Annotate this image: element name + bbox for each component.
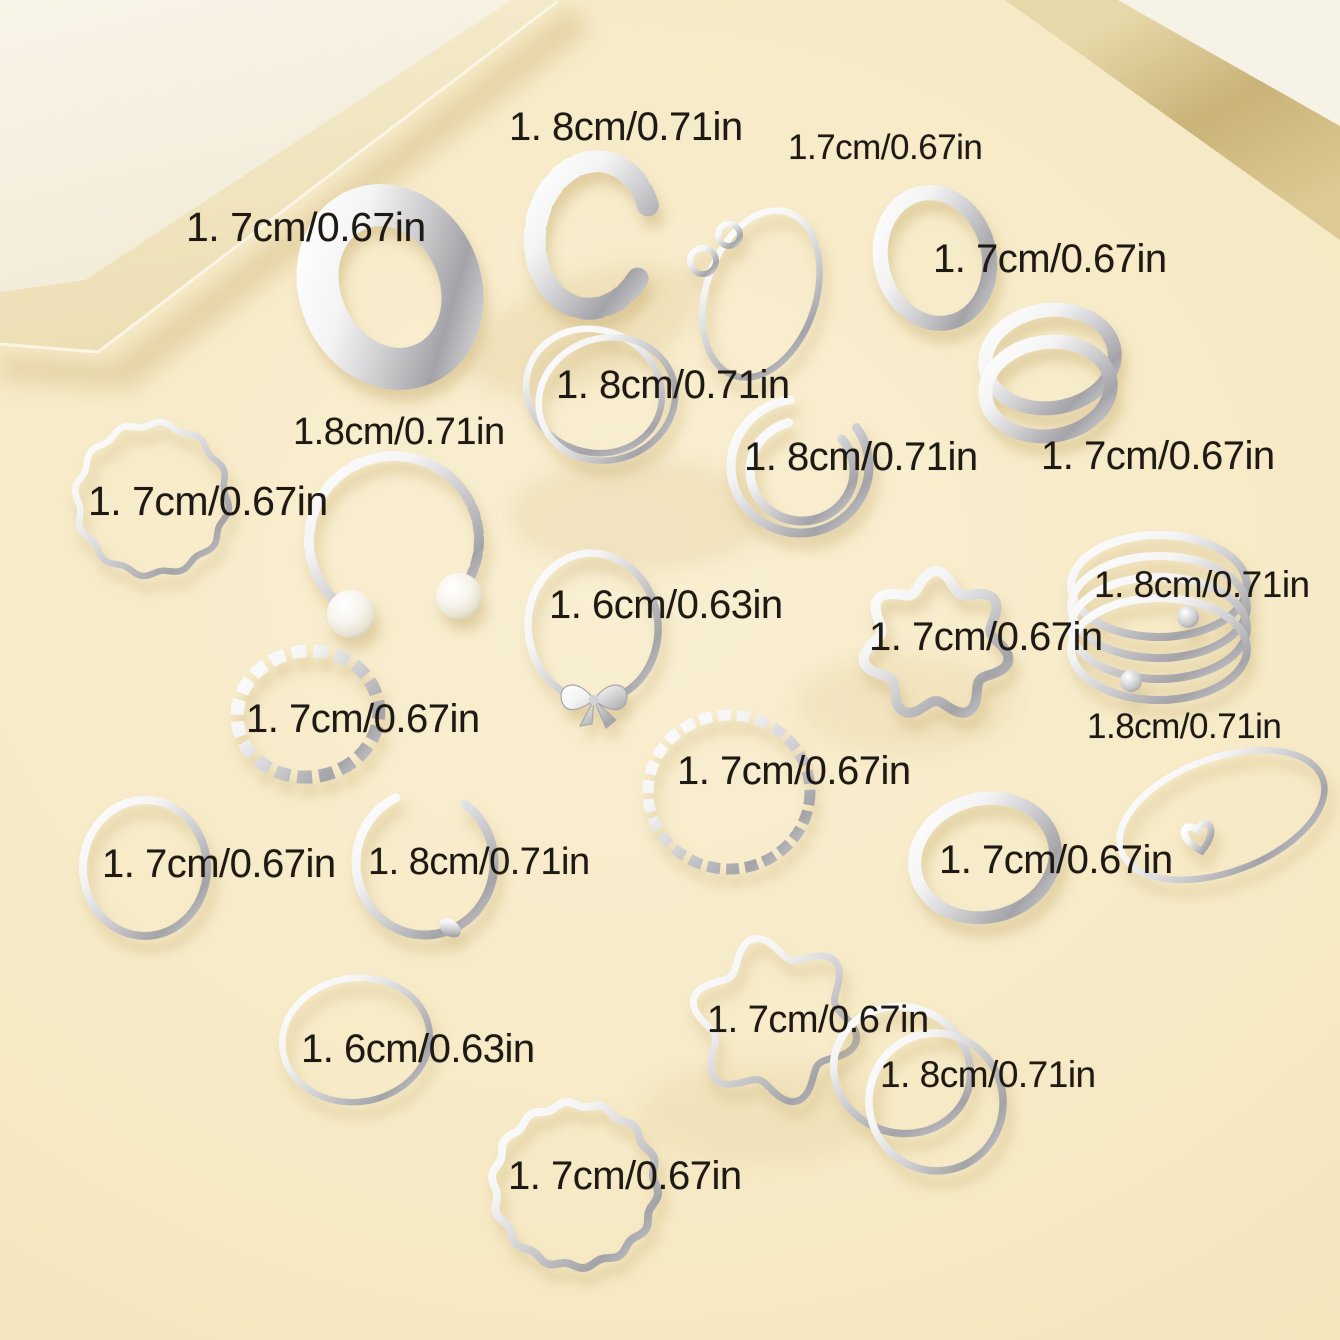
size-label: 1. 8cm/0.71in [1094, 566, 1310, 605]
size-label: 1. 7cm/0.67in [88, 480, 328, 523]
size-label: 1. 7cm/0.67in [869, 616, 1103, 658]
metal-ball-end [1177, 606, 1199, 628]
size-label: 1. 7cm/0.67in [933, 238, 1167, 280]
size-label: 1. 7cm/0.67in [508, 1155, 742, 1197]
bow-ring [521, 547, 666, 728]
double-wrap-ring [979, 301, 1121, 444]
size-label: 1.8cm/0.71in [1087, 709, 1281, 746]
size-label: 1. 8cm/0.71in [509, 106, 743, 148]
size-label: 1. 8cm/0.71in [368, 843, 590, 883]
heart-icon [1183, 823, 1215, 854]
size-label: 1. 7cm/0.67in [1041, 435, 1275, 477]
pearl-bead [327, 590, 375, 638]
bow-icon [561, 685, 627, 728]
size-label: 1. 7cm/0.67in [707, 1001, 929, 1041]
size-label: 1. 7cm/0.67in [246, 698, 480, 740]
size-label: 1.8cm/0.71in [293, 413, 505, 453]
product-photo-canvas: 1. 8cm/0.71in1.7cm/0.67in1. 7cm/0.67in1.… [0, 0, 1340, 1340]
scene-graphic [0, 0, 1340, 1340]
soft-shadow-blob [795, 655, 1015, 755]
size-label: 1. 7cm/0.67in [186, 206, 426, 249]
size-label: 1. 6cm/0.63in [301, 1028, 535, 1070]
pearl-bead [436, 573, 482, 619]
size-label: 1. 8cm/0.71in [880, 1056, 1096, 1095]
size-label: 1. 8cm/0.71in [744, 436, 978, 478]
size-label: 1. 6cm/0.63in [549, 584, 783, 626]
size-label: 1. 7cm/0.67in [677, 750, 911, 792]
pearl-twist-cuff-ring [309, 456, 482, 638]
metal-ball-end [1120, 670, 1142, 692]
corner-prop [1005, 0, 1340, 240]
size-label: 1. 7cm/0.67in [102, 843, 336, 885]
size-label: 1.7cm/0.67in [788, 130, 982, 167]
size-label: 1. 8cm/0.71in [556, 364, 790, 406]
size-label: 1. 7cm/0.67in [939, 839, 1173, 881]
